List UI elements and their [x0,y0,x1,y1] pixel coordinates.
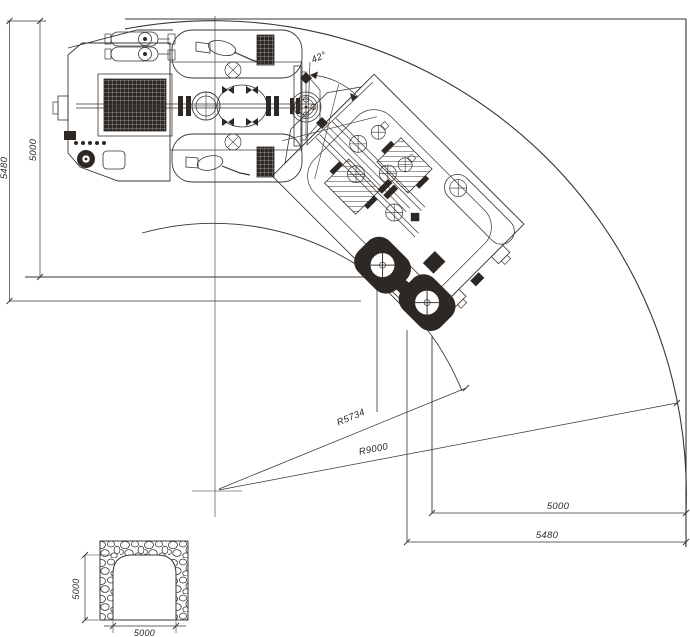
air-cylinders [105,32,175,61]
cross-section-width-label: 5000 [134,628,155,637]
front-end-fittings [448,245,514,311]
hinge-lug-bottom [316,117,328,129]
centerlines [192,16,242,517]
rear-machine-unit [53,30,320,182]
drive-block [423,251,446,274]
inner-radius-label: R5734 [335,407,366,429]
angle-annotation: 42° [307,50,373,145]
leader-r5734 [219,388,466,489]
leader-r9000 [219,403,677,490]
bottom-tunnel-width-label: 5000 [547,501,570,512]
track-frame-bottom [172,134,302,182]
mount-bowties [222,86,258,126]
tank-a [439,169,520,250]
radius-leaders: R5734 R9000 [219,385,680,490]
gearbox-b [325,159,380,214]
tread-block-top [257,35,274,65]
tread-block-bottom [257,147,274,177]
outer-radius-label: R9000 [358,441,389,458]
frame-cross-fittings [225,62,241,150]
articulation-angle-label: 42° [310,50,328,66]
left-clearance-label: 5480 [0,156,10,179]
track-frame-top [172,30,302,78]
dimension-left: 5000 5480 [0,18,46,304]
radiator-core [104,79,166,131]
dimension-bottom: 5000 5480 [404,501,689,545]
leader-r5734-tick [463,385,469,391]
left-tunnel-width-label: 5000 [28,138,39,161]
tunnel-curve-negotiation-drawing: R5734 R9000 5000 5480 5000 5480 42° [0,0,690,637]
rock-lining [100,541,188,620]
cross-section-height-label: 5000 [71,578,81,599]
bottom-clearance-label: 5480 [536,530,559,541]
exhaust-mufflers [186,38,262,175]
engineering-drawing-page: R5734 R9000 5000 5480 5000 5480 42° [0,0,690,637]
tunnel-cross-section: 5000 5000 [71,541,188,637]
